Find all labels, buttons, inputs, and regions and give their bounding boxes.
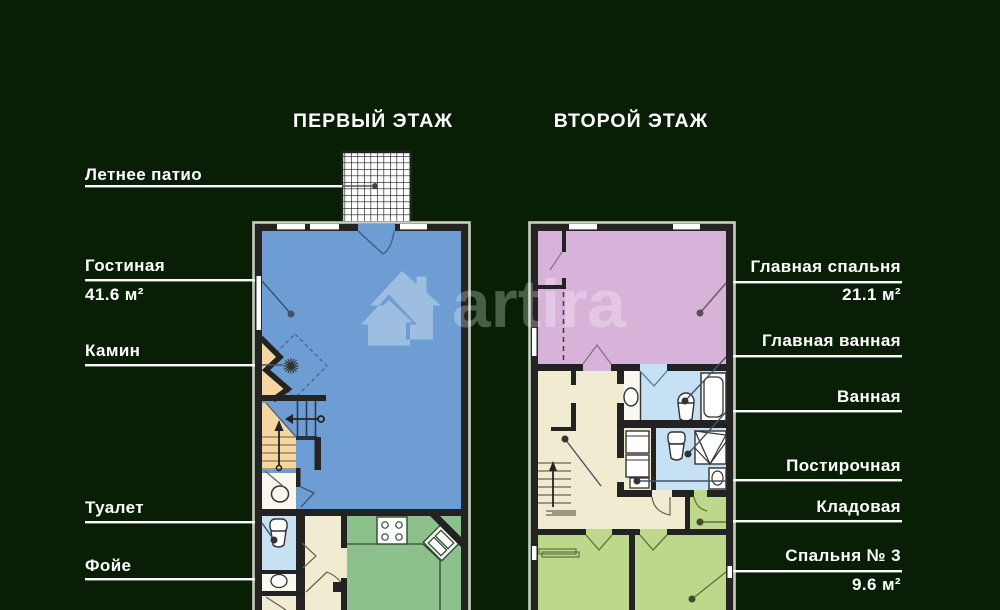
svg-text:Камин: Камин — [85, 341, 140, 360]
svg-text:41.6 м²: 41.6 м² — [85, 285, 144, 304]
svg-text:21.1 м²: 21.1 м² — [842, 285, 901, 304]
svg-text:Главная ванная: Главная ванная — [762, 331, 901, 350]
svg-text:Постирочная: Постирочная — [786, 456, 901, 475]
svg-text:ВТОРОЙ ЭТАЖ: ВТОРОЙ ЭТАЖ — [554, 108, 709, 132]
svg-text:Летнее патио: Летнее патио — [85, 165, 202, 184]
svg-text:Кладовая: Кладовая — [816, 497, 901, 516]
svg-text:9.6 м²: 9.6 м² — [852, 575, 901, 594]
svg-text:Спальня № 3: Спальня № 3 — [785, 546, 901, 565]
svg-text:Ванная: Ванная — [837, 387, 901, 406]
svg-text:Туалет: Туалет — [85, 498, 144, 517]
svg-text:Главная спальня: Главная спальня — [751, 257, 901, 276]
svg-text:Фойе: Фойе — [85, 556, 131, 575]
svg-text:ПЕРВЫЙ ЭТАЖ: ПЕРВЫЙ ЭТАЖ — [293, 108, 453, 132]
svg-text:artira: artira — [452, 266, 627, 342]
svg-text:Гостиная: Гостиная — [85, 256, 165, 275]
